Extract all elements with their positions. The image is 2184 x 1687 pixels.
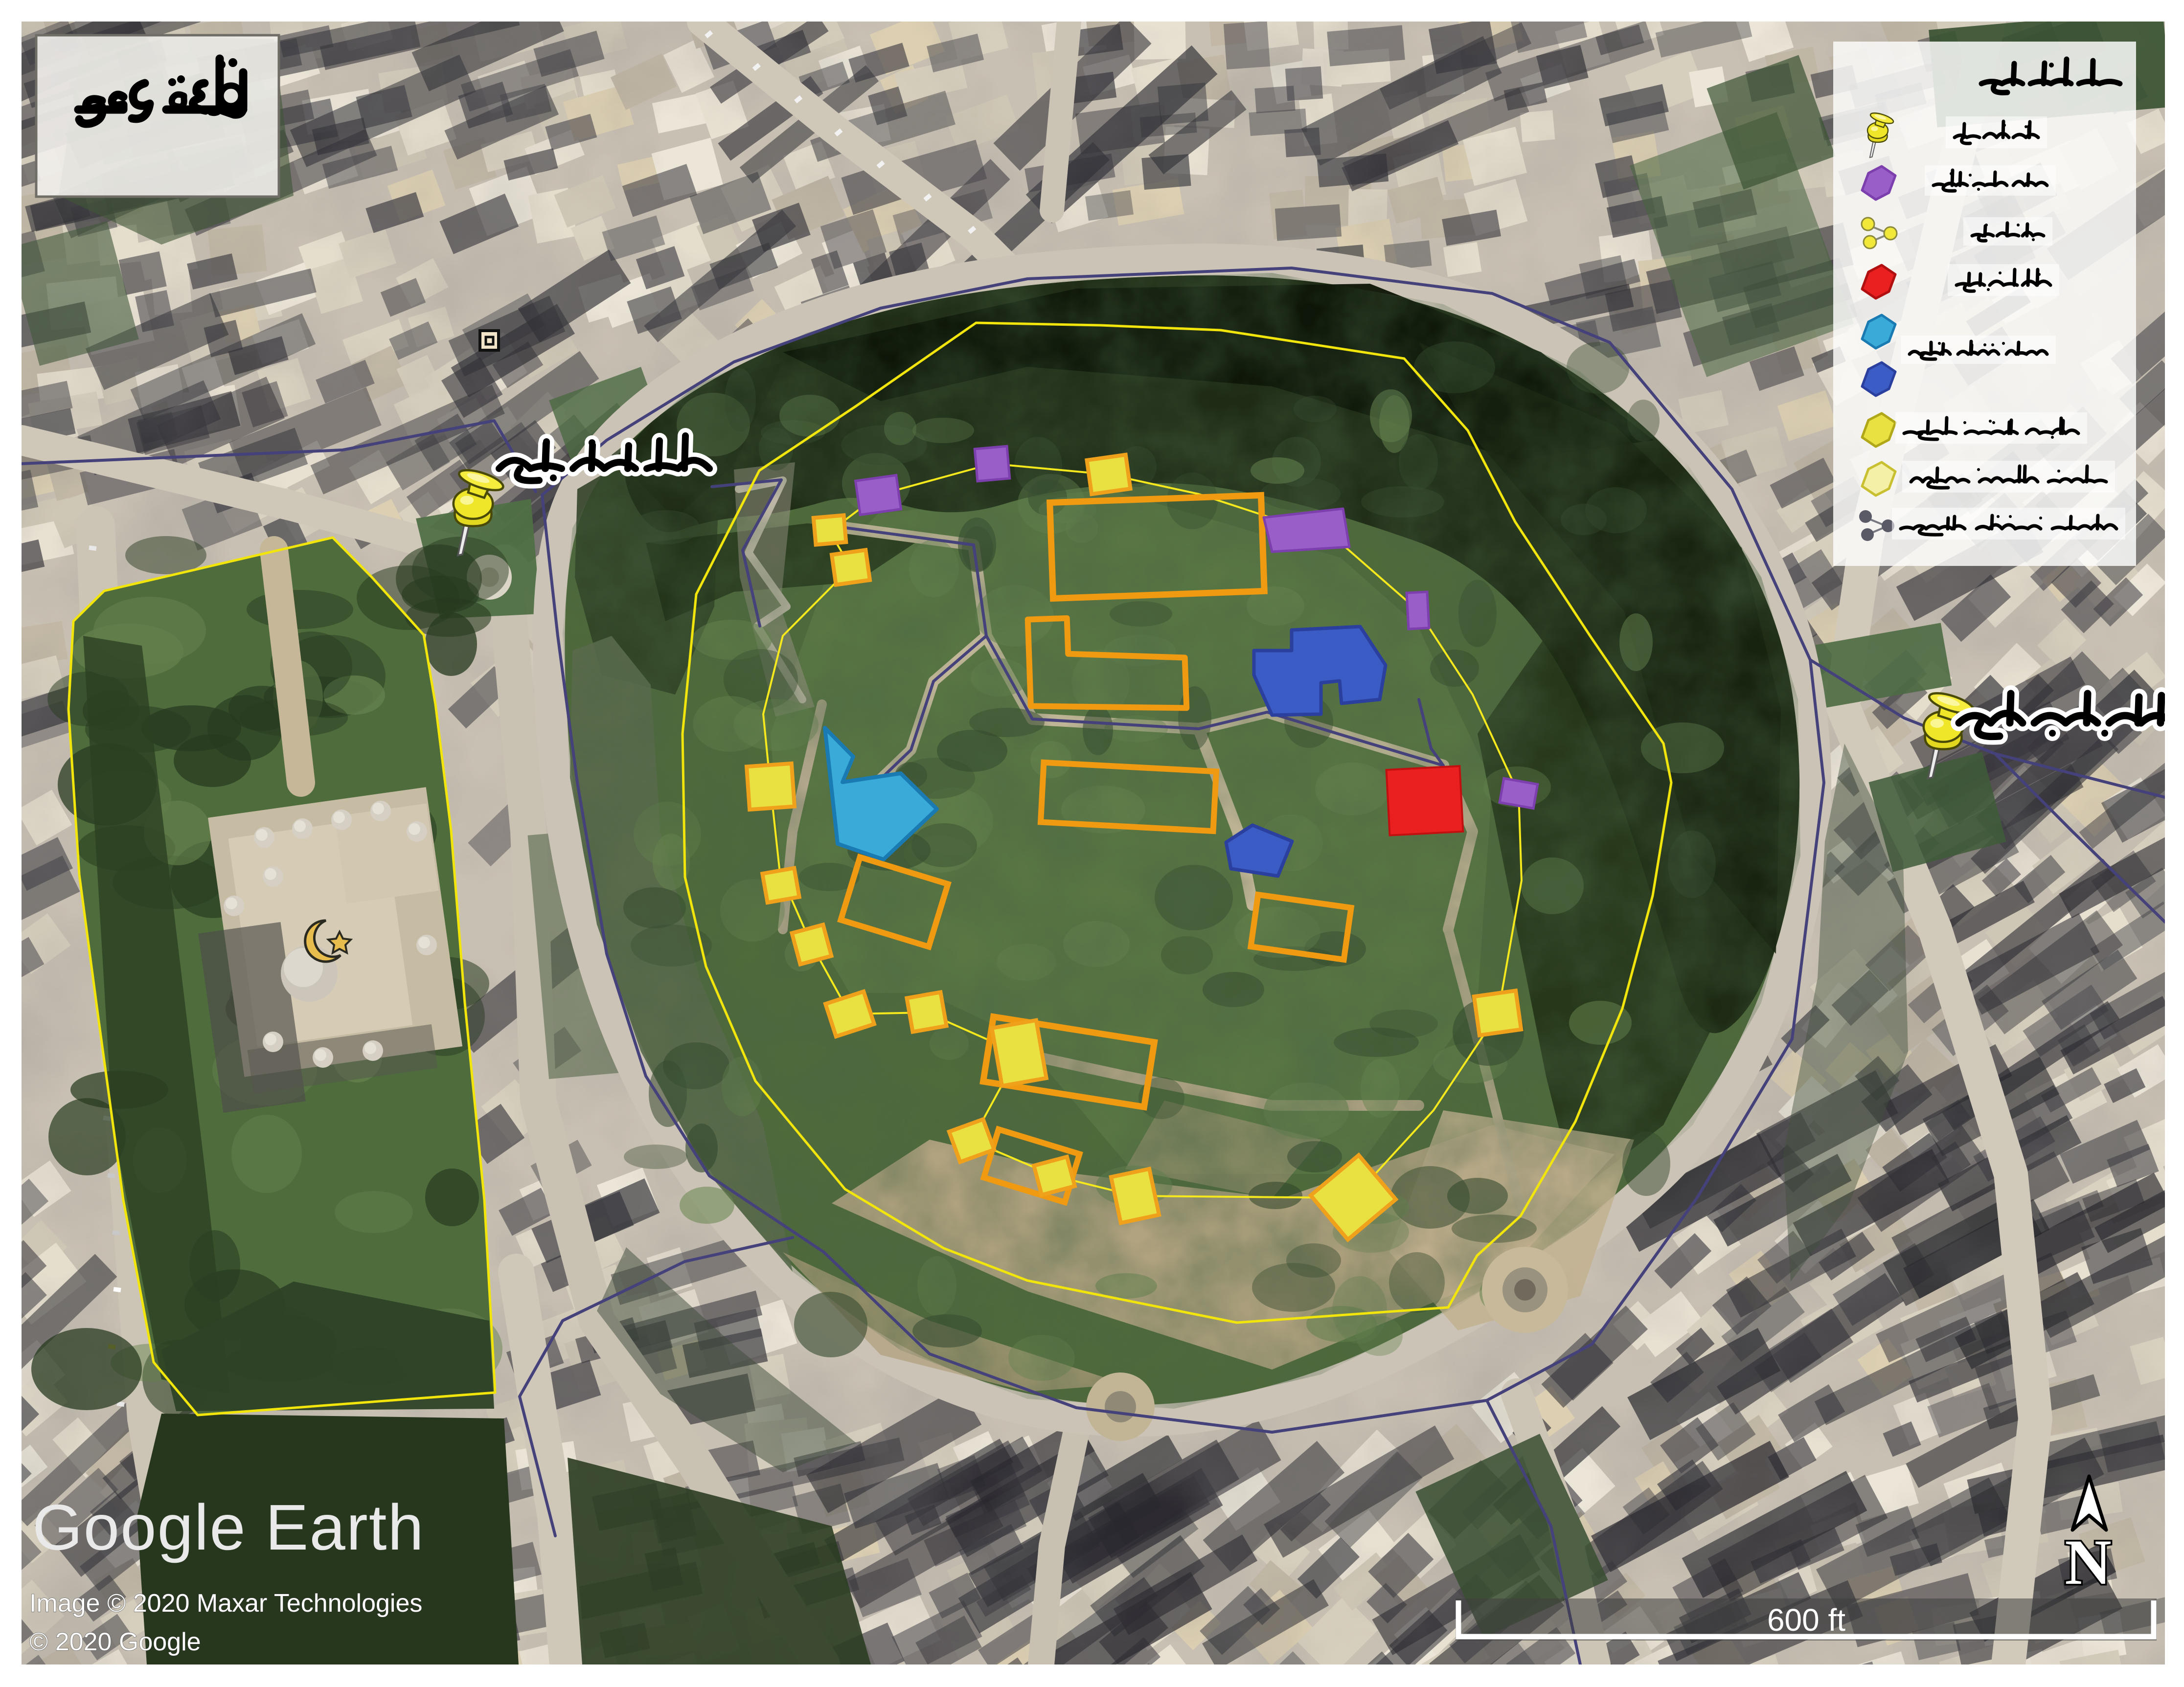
svg-text:600 ft: 600 ft [1767, 1602, 1845, 1638]
svg-text:Image © 2020 Maxar Technologie: Image © 2020 Maxar Technologies [29, 1589, 422, 1618]
svg-text:© 2020 Google: © 2020 Google [29, 1628, 201, 1656]
svg-text:Google Earth: Google Earth [32, 1491, 425, 1563]
svg-text:N: N [2065, 1526, 2111, 1598]
